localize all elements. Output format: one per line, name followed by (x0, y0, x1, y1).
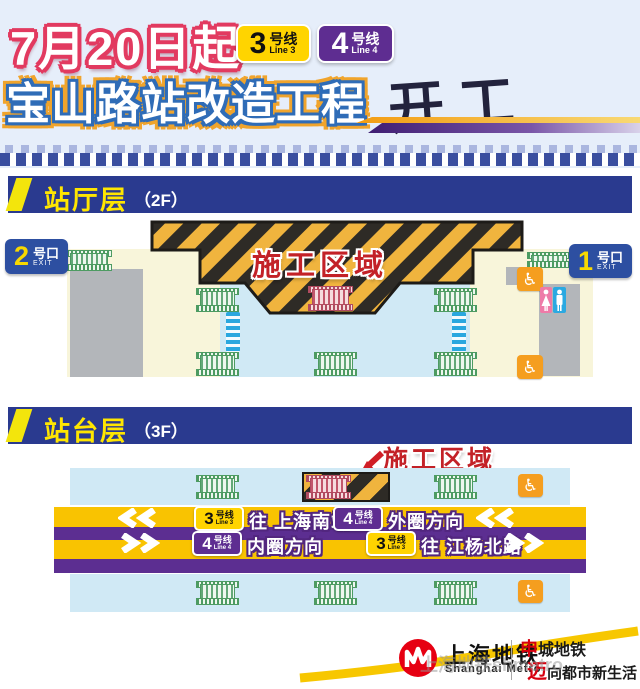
platform-title: 站台层 (44, 411, 128, 448)
checker-row-top (0, 145, 640, 153)
escalator-icon (434, 288, 477, 312)
escalator-icon (196, 475, 239, 499)
line3-badge: 3 号线 Line 3 (236, 24, 311, 63)
hall-floor: （2F） (134, 186, 188, 211)
track-band-down-purple (54, 559, 586, 573)
escalator-icon (196, 581, 239, 605)
escalator-icon (434, 352, 477, 376)
chevrons-right-icon (502, 533, 544, 553)
wheelchair-icon: ♿ (518, 474, 543, 497)
poster: 7月20日起 3 号线 Line 3 4 号线 Line 4 宝山路站改造工程 … (0, 0, 640, 689)
checker-row-bottom (0, 153, 640, 166)
wheelchair-icon: ♿ (518, 580, 543, 603)
line4-name: 号线 (351, 32, 379, 46)
line4-mini-badge: 4 号线Line 4 (333, 506, 383, 531)
section-accent (6, 409, 33, 442)
line4-number: 4 (332, 29, 349, 59)
wheelchair-icon: ♿ (517, 355, 543, 379)
chevrons-left-icon (118, 508, 160, 528)
line3-name: 号线 (269, 32, 297, 46)
escalator-icon (314, 581, 357, 605)
exit1-badge: 1 号口 EXIT (569, 244, 632, 278)
title-swoosh-orange (356, 117, 640, 123)
section-accent (6, 178, 33, 211)
escalator-icon (434, 475, 477, 499)
line3-mini-badge: 3 号线Line 3 (194, 506, 244, 531)
exit2-badge: 2 号口 EXIT (5, 239, 68, 274)
section-bar-platform: 站台层 （3F） (8, 407, 632, 444)
fare-gates-icon (226, 312, 240, 352)
line3-sub: Line 3 (269, 46, 297, 55)
fare-gates-icon (452, 312, 466, 352)
closed-escalator-icon (306, 475, 351, 499)
closed-escalator-icon (308, 286, 353, 311)
escalator-icon (314, 352, 357, 376)
escalator-icon (527, 252, 571, 268)
watermark: 上海地铁shmetro (420, 651, 563, 677)
main-title: 宝山路站改造工程 (6, 68, 366, 132)
line4-mini-badge: 4 号线Line 4 (192, 531, 242, 556)
line4-badge: 4 号线 Line 4 (317, 24, 394, 63)
hall-construction-label: 施工区域 (252, 242, 388, 284)
line3-number: 3 (250, 29, 267, 59)
hall-title: 站厅层 (44, 180, 128, 217)
platform-floor: （3F） (134, 417, 188, 442)
male-toilet-icon (553, 287, 566, 313)
line3-mini-badge: 3 号线Line 3 (366, 531, 416, 556)
section-bar-hall: 站厅层 （2F） (8, 176, 632, 213)
escalator-icon (434, 581, 477, 605)
escalator-icon (66, 250, 112, 271)
escalator-icon (196, 288, 239, 312)
chevrons-right-icon (118, 533, 160, 553)
female-toilet-icon (540, 287, 552, 313)
line4-sub: Line 4 (351, 46, 379, 55)
title-swoosh-purple (368, 123, 640, 133)
chevrons-left-icon (476, 508, 518, 528)
destination-inner-loop: 内圈方向 (247, 533, 323, 559)
escalator-icon (196, 352, 239, 376)
hall-gray-block-left (70, 269, 143, 377)
